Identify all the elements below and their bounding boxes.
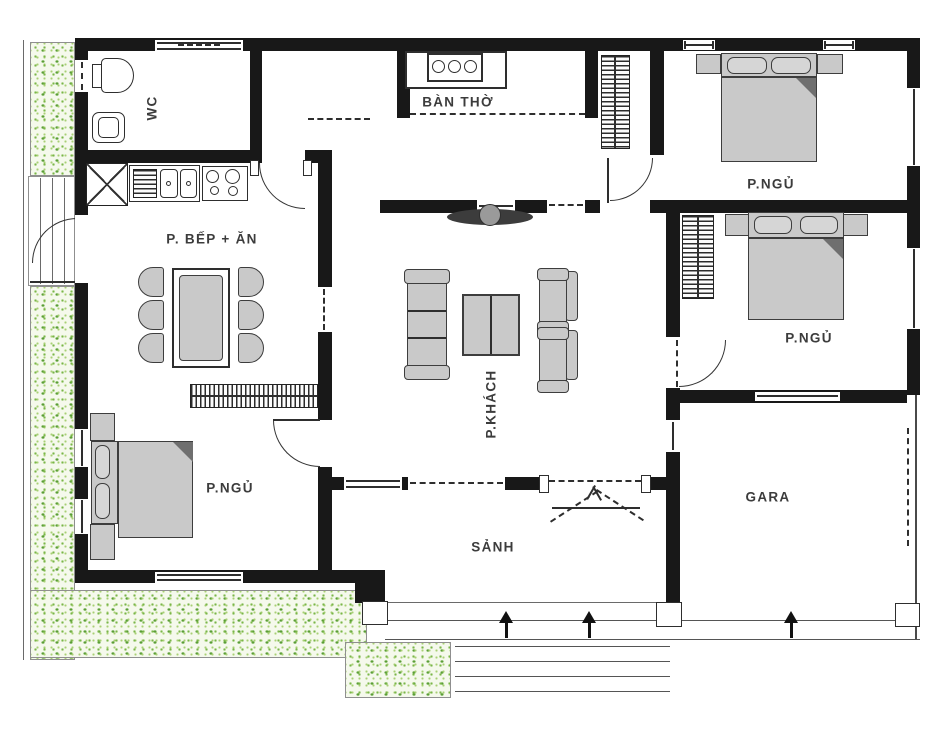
wash-basin-inner (98, 117, 119, 138)
window-cap (907, 166, 920, 170)
wall (88, 150, 250, 163)
dining-chair (138, 300, 164, 330)
window-line (712, 41, 714, 49)
step-line (455, 676, 670, 677)
burner (225, 169, 240, 184)
window-line (81, 500, 83, 533)
window-line (825, 44, 853, 46)
garden-bed (345, 642, 451, 698)
garden-strip (30, 590, 367, 658)
opening (318, 287, 332, 332)
altar-censer (448, 60, 461, 73)
wardrobe-divider (697, 216, 699, 298)
window-cap (907, 84, 920, 88)
window-cap (75, 425, 88, 429)
room-label-hall: SẢNH (471, 540, 514, 555)
walkway-line (40, 178, 41, 284)
wall (666, 490, 680, 590)
dining-table-top (179, 275, 223, 361)
entrance-arrow-stem (790, 623, 793, 638)
ceiling-fan-hub (479, 204, 501, 226)
altar-censer (432, 60, 445, 73)
floor-plan: WC P. BẾP + ĂN BÀN THỜ P.NGỦ P.NGỦ P.NGỦ… (0, 0, 930, 738)
window (755, 392, 840, 401)
nightstand (725, 214, 749, 236)
window-line (81, 430, 83, 466)
wall (650, 38, 664, 155)
entrance-arrow-icon (784, 611, 798, 623)
room-label-living: P.KHÁCH (484, 370, 499, 439)
wall (651, 477, 680, 490)
hall-cabinet (601, 55, 630, 149)
wall (355, 570, 385, 603)
window-cap (907, 329, 920, 333)
window-cap (75, 495, 88, 499)
room-label-bedroom-mid-right: P.NGỦ (785, 331, 833, 346)
door-jamb (539, 475, 549, 493)
window-line (81, 62, 83, 90)
site-boundary-line (23, 40, 24, 660)
opening-dash (323, 289, 325, 330)
entrance-arrow-icon (499, 611, 513, 623)
window-line (757, 395, 838, 397)
window-line (178, 44, 220, 46)
wall (666, 213, 680, 337)
dining-chair (238, 333, 264, 363)
door-arc (610, 158, 653, 201)
pillow (771, 57, 811, 74)
room-label-kitchen: P. BẾP + ĂN (166, 232, 257, 247)
french-door-dash (549, 480, 641, 482)
wall (250, 51, 262, 163)
coffee-table-line (490, 296, 492, 354)
room-label-bedroom-top-right: P.NGỦ (747, 177, 795, 192)
altar-censer (464, 60, 477, 73)
door-leaf (273, 419, 320, 421)
wall (666, 403, 680, 420)
pillow (727, 57, 767, 74)
dish-rack (133, 169, 157, 198)
pillow (95, 483, 110, 519)
porch-column (656, 602, 682, 627)
door-jamb (641, 475, 651, 493)
window-line (913, 249, 915, 328)
window-cap (75, 467, 88, 471)
nightstand (817, 54, 843, 74)
room-label-altar: BÀN THỜ (422, 95, 494, 110)
door-arc (679, 340, 726, 387)
window-line (824, 41, 826, 49)
window-line (410, 482, 503, 484)
nightstand (696, 54, 721, 74)
window-line (549, 204, 583, 206)
door-arc (273, 420, 320, 467)
window-line (157, 579, 241, 581)
door-leaf (607, 158, 609, 203)
burner (228, 186, 238, 196)
armchair-seat (539, 339, 567, 381)
nightstand (90, 524, 115, 560)
entrance-arrow-stem (588, 623, 591, 638)
window-line (852, 41, 854, 49)
step-line (455, 646, 670, 647)
cabinet-divider (614, 56, 616, 148)
wardrobe-divider (191, 395, 317, 397)
sink-drain (186, 181, 191, 186)
window-cap (75, 534, 88, 538)
pillow (754, 216, 792, 234)
sink-drain (166, 181, 171, 186)
window (344, 477, 402, 490)
entrance-arrow-icon (582, 611, 596, 623)
door-leaf (676, 340, 678, 387)
sofa-armrest (404, 365, 450, 380)
armchair-arm (537, 380, 569, 393)
wall (585, 51, 598, 118)
window-line (346, 486, 400, 488)
door-opening (75, 215, 88, 283)
door-opening (318, 420, 332, 467)
porch-edge (385, 620, 920, 640)
nightstand (843, 214, 868, 236)
sofa (407, 283, 447, 366)
room-label-bedroom-bottom-left: P.NGỦ (206, 481, 254, 496)
step-line (455, 691, 670, 692)
burner (206, 170, 219, 183)
pillow (95, 445, 110, 479)
porch-column (895, 603, 920, 627)
dining-chair (138, 333, 164, 363)
dining-chair (238, 300, 264, 330)
nightstand (90, 413, 115, 441)
kitchen-cabinet-x (86, 163, 128, 206)
burner (210, 186, 219, 195)
entrance-arrow-stem (505, 623, 508, 638)
window-line (685, 44, 713, 46)
sofa-cushion-line (408, 310, 446, 312)
wall (318, 150, 332, 583)
blanket-fold (823, 239, 843, 259)
window-line (672, 422, 674, 450)
side-door-leaf (30, 281, 77, 283)
step-line (455, 661, 670, 662)
opening-dash (410, 113, 585, 115)
garage-door-dash (907, 428, 909, 546)
room-label-wc: WC (145, 95, 160, 120)
window-line (684, 41, 686, 49)
garden-strip (30, 42, 75, 176)
window-line (157, 48, 241, 50)
dining-chair (238, 267, 264, 297)
pillow (800, 216, 838, 234)
blanket-fold (173, 442, 193, 462)
window-cap (907, 244, 920, 248)
window-line (346, 480, 400, 482)
sofa-cushion-line (408, 337, 446, 339)
room-label-garage: GARA (746, 490, 791, 505)
french-door-swing (596, 489, 644, 521)
opening (547, 200, 585, 213)
armchair-seat (539, 280, 567, 322)
window-line (913, 89, 915, 165)
door-arc (259, 163, 305, 209)
dining-chair (138, 267, 164, 297)
porch-column (362, 601, 388, 625)
opening-dash (308, 118, 370, 120)
toilet-bowl (101, 58, 134, 93)
blanket-fold (796, 78, 816, 98)
wall (332, 477, 344, 490)
window-line (157, 574, 241, 576)
hall-floor-edge (385, 602, 662, 603)
door-jamb (250, 160, 259, 176)
sofa-armrest (404, 269, 450, 284)
wall (666, 452, 680, 477)
